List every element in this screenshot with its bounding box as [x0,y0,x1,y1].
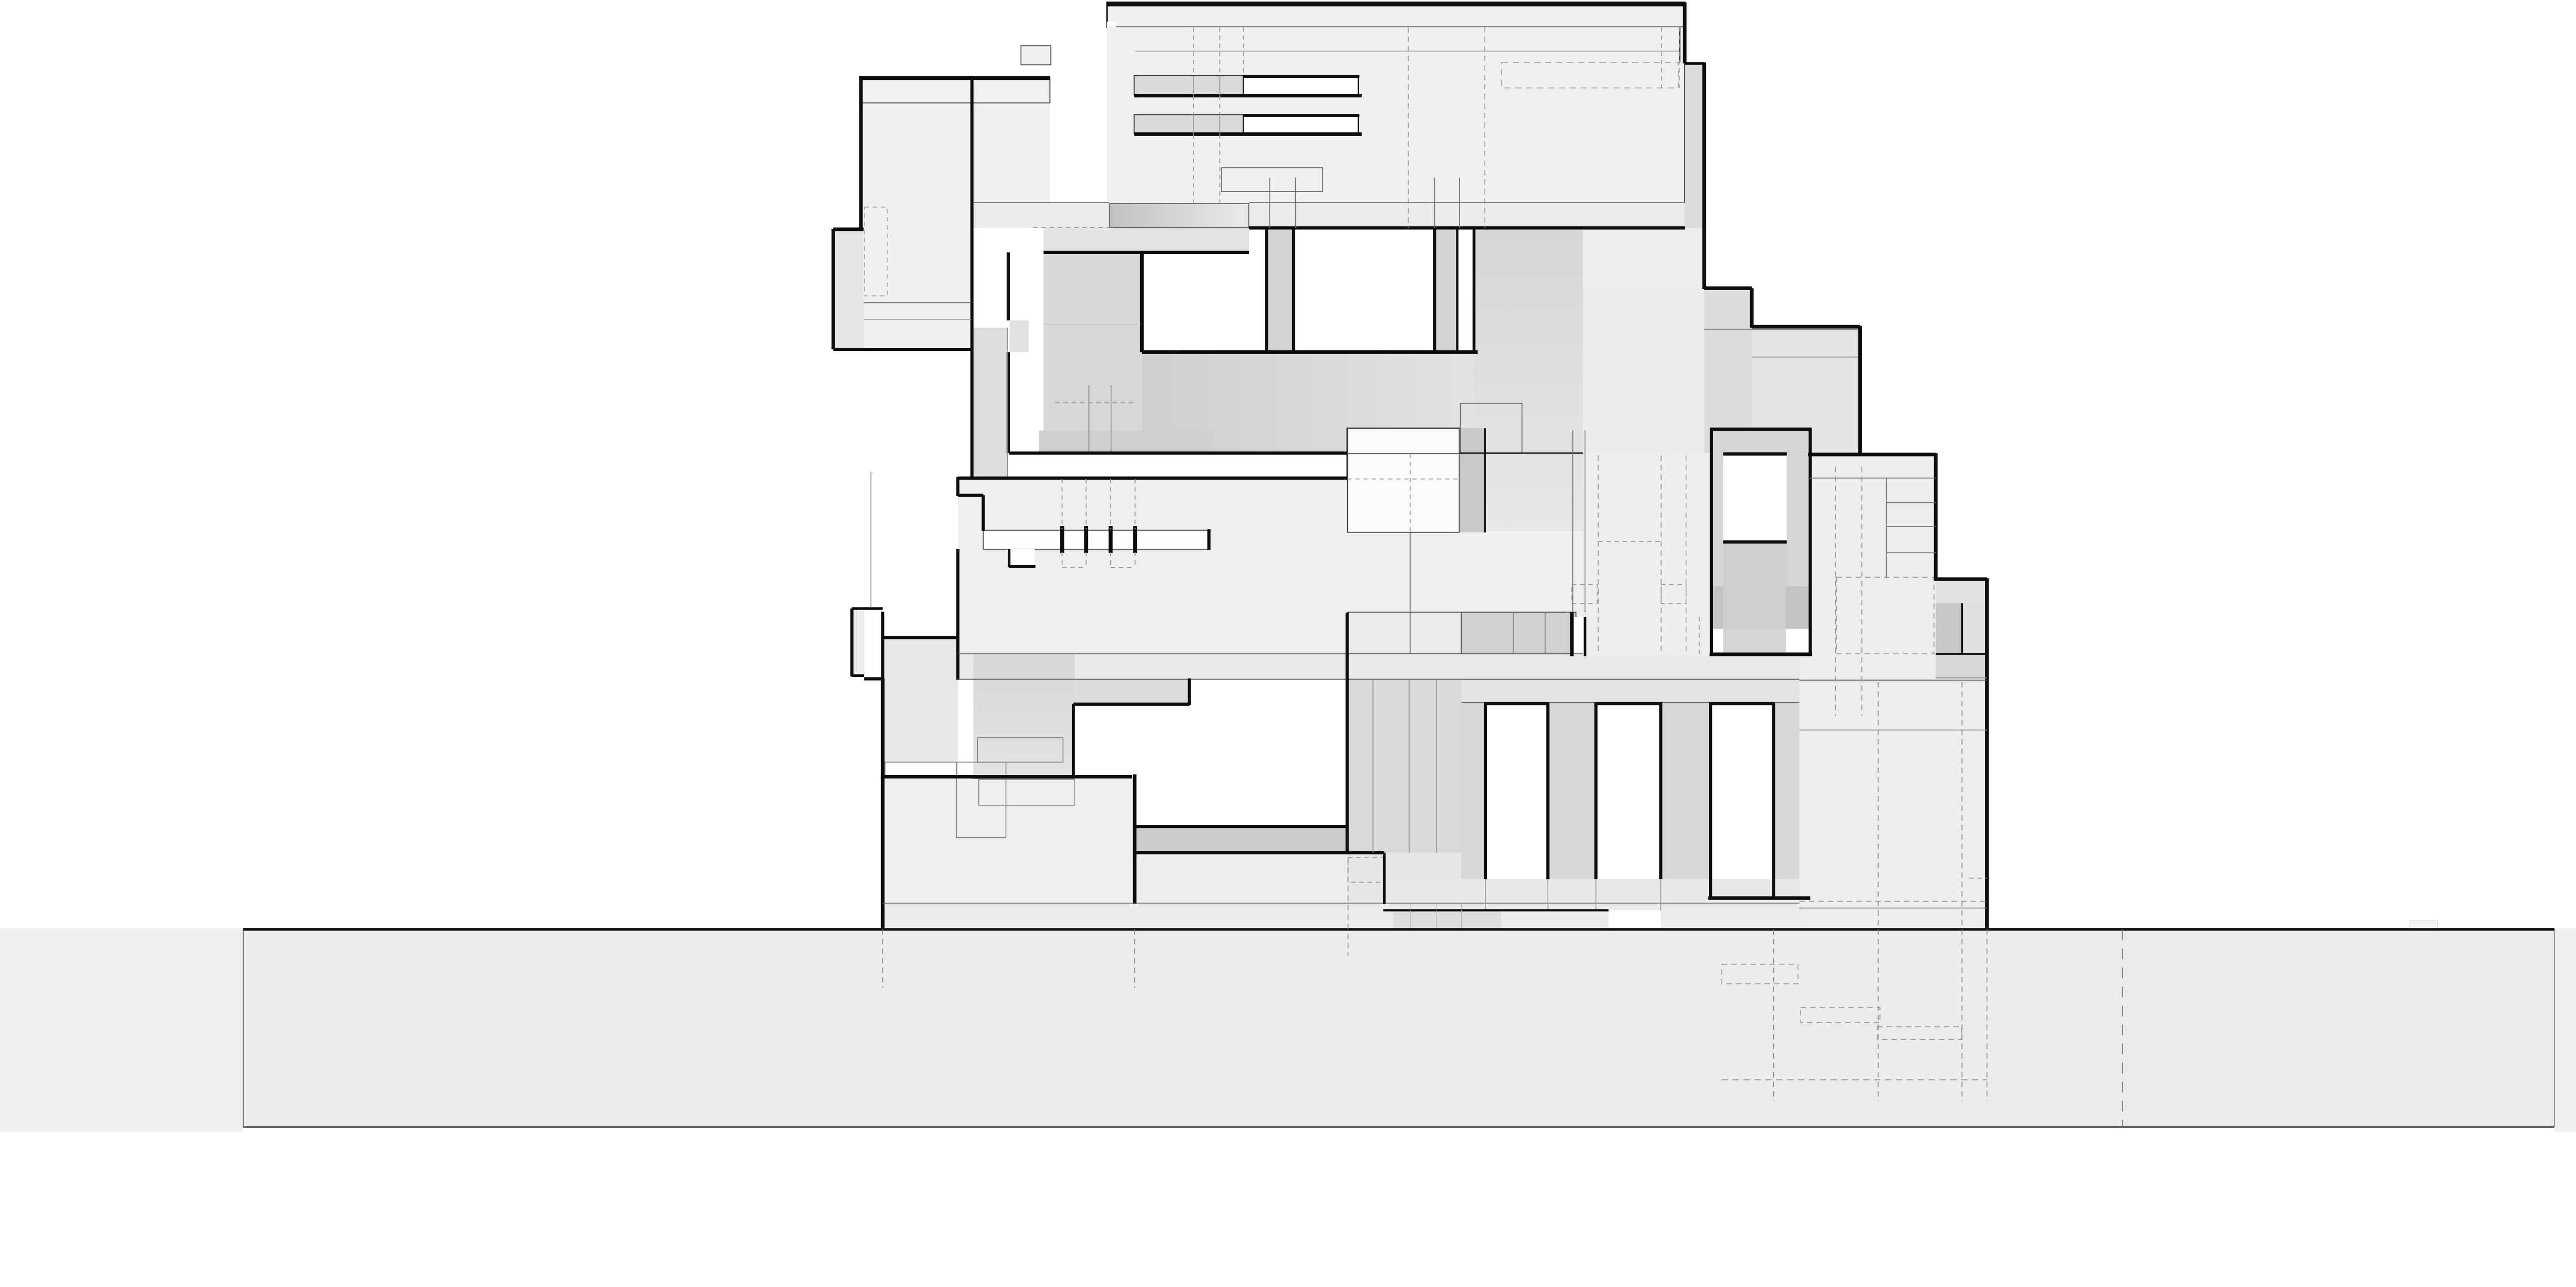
band-notch [1009,549,1035,566]
room-side-mullion [1460,428,1485,532]
slab-edge-band [973,202,1685,228]
right-wing [1810,453,1936,579]
grad-panel-4272 [1936,654,1987,678]
under-beam [1134,853,1347,903]
wing-small-box [1021,46,1051,65]
elevation-page [0,0,2576,1132]
step-band [1936,578,1987,603]
gradient-bar [1109,204,1249,228]
void-white-upper [1190,679,1347,704]
window1-lintel [1044,228,1249,252]
bridge-beam [1134,825,1347,853]
shaft-dark-left [1711,586,1723,629]
ground-bump [2410,921,2438,928]
left-gray-strip [883,637,958,780]
architectural-elevation-drawing [0,0,2576,1132]
right-field-low [1583,453,1710,655]
lower-wall-block [1347,612,1462,654]
gray-mass-right [1474,228,1583,531]
mullion-2 [1435,228,1458,352]
strip-window2-gray [1134,115,1243,134]
under-shadow-band [1039,431,1214,453]
left-slit-spacer [1010,320,1029,352]
big-window-2 [1294,228,1435,352]
plinth-gap [1608,910,1660,928]
plinth-gray-block [1393,910,1501,928]
strip-window1-gray [1134,76,1243,95]
right-wing-lower [1811,578,1936,655]
ground-plane [243,928,2554,1127]
shaft-slot-right [1786,629,1809,654]
door-opening-c [1710,702,1773,896]
dark-panel-4272 [1936,603,1962,654]
shaft-window [1723,453,1787,542]
big-window-1 [1142,252,1266,352]
void-white [1132,704,1347,826]
door-opening-a [1485,702,1548,879]
right-field-mid [1583,288,1704,453]
gray-sub-block [1461,612,1576,654]
left-slot [864,608,883,679]
under-slab-strip [1107,27,1136,202]
stair-rail [984,530,1209,549]
left-wing-top-band [861,77,1050,103]
shaft-panel [1723,542,1787,629]
left-wing [861,77,971,349]
lower-right-field [1800,655,1987,928]
right-field-upper [1583,228,1704,288]
lower-wall [1347,679,1462,853]
surround-header [1461,679,1799,702]
strip-window1-white [1243,76,1358,95]
shaft-dark-right [1786,586,1809,629]
mid-slit [1457,228,1474,352]
surround-top-row [1460,654,1800,679]
t-shape-vertical [973,654,1075,777]
light-panel-4330 [1962,603,1987,654]
strip-window2-white [1243,115,1358,134]
left-shaft [973,328,1008,477]
roof-slab-notch [1107,22,1116,27]
door-opening-b [1596,702,1661,879]
floating-room [1347,428,1460,532]
shaft-slot-left [1711,629,1723,654]
left-slit-upper [1010,254,1029,320]
left-gray-panel [1044,254,1142,453]
left-slit-lower [1010,352,1029,453]
upper-left-field [973,103,1050,202]
t-shape-arm [1075,679,1190,704]
mullion-1 [1266,228,1294,352]
plinth [883,903,1799,928]
ground-right-band [2554,928,2576,1132]
ground-left-band [0,928,243,1132]
left-wing-step [833,229,863,348]
